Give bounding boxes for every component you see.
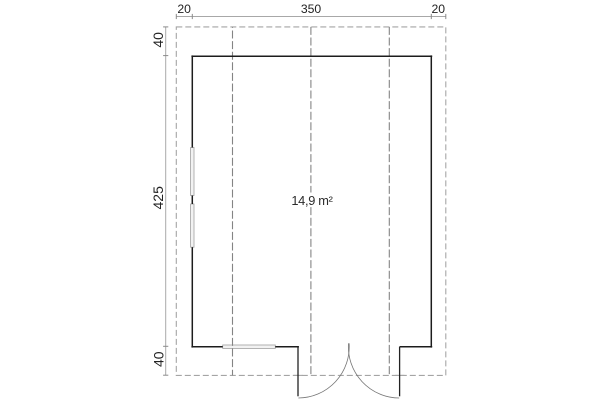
svg-text:425: 425: [150, 186, 166, 210]
svg-text:14,9 m²: 14,9 m²: [291, 193, 333, 208]
svg-text:20: 20: [432, 2, 446, 16]
svg-text:40: 40: [150, 32, 166, 48]
svg-text:350: 350: [301, 2, 322, 16]
svg-text:40: 40: [150, 351, 166, 367]
svg-text:20: 20: [177, 2, 191, 16]
